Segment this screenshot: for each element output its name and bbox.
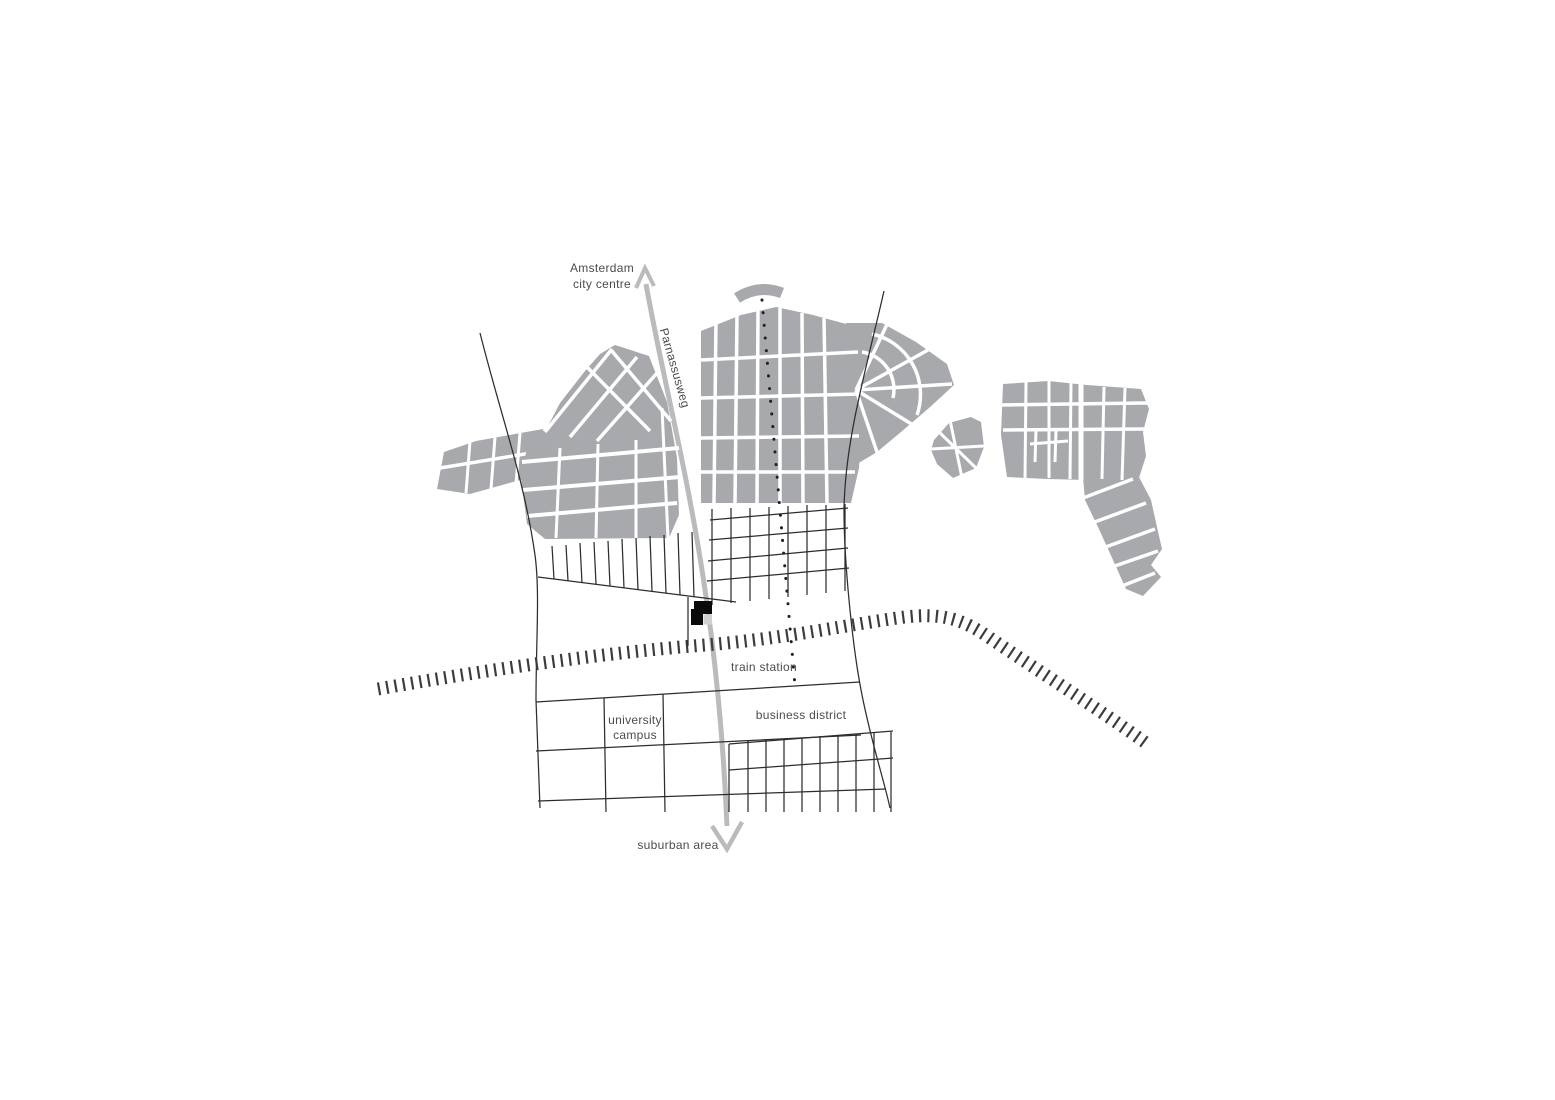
label-train-station: train station	[731, 660, 797, 674]
business-district-grid	[729, 731, 893, 812]
label-suburban-area: suburban area	[637, 838, 718, 852]
railway-line	[378, 616, 1146, 743]
site-plan-map: Amsterdam city centre Parnassusweg train…	[0, 0, 1555, 1100]
site-building-marker	[688, 597, 712, 646]
upper-right-grid	[707, 504, 849, 605]
left-boundary-road	[480, 333, 540, 808]
city-fabric-right	[1001, 381, 1162, 596]
city-fabric-left	[521, 345, 680, 539]
arc-block	[737, 289, 782, 298]
city-fabric-center	[701, 307, 954, 503]
label-university-campus-line2: campus	[613, 728, 657, 742]
lower-grid	[536, 682, 893, 812]
label-destination-line1: Amsterdam	[570, 261, 634, 275]
label-university-campus-line1: university	[608, 713, 662, 727]
site-plan-page: Amsterdam city centre Parnassusweg train…	[0, 0, 1555, 1100]
city-fabric	[437, 289, 1162, 596]
city-fabric-small-fan	[931, 417, 984, 478]
label-business-district: business district	[756, 708, 847, 722]
label-destination-line2: city centre	[573, 277, 631, 291]
